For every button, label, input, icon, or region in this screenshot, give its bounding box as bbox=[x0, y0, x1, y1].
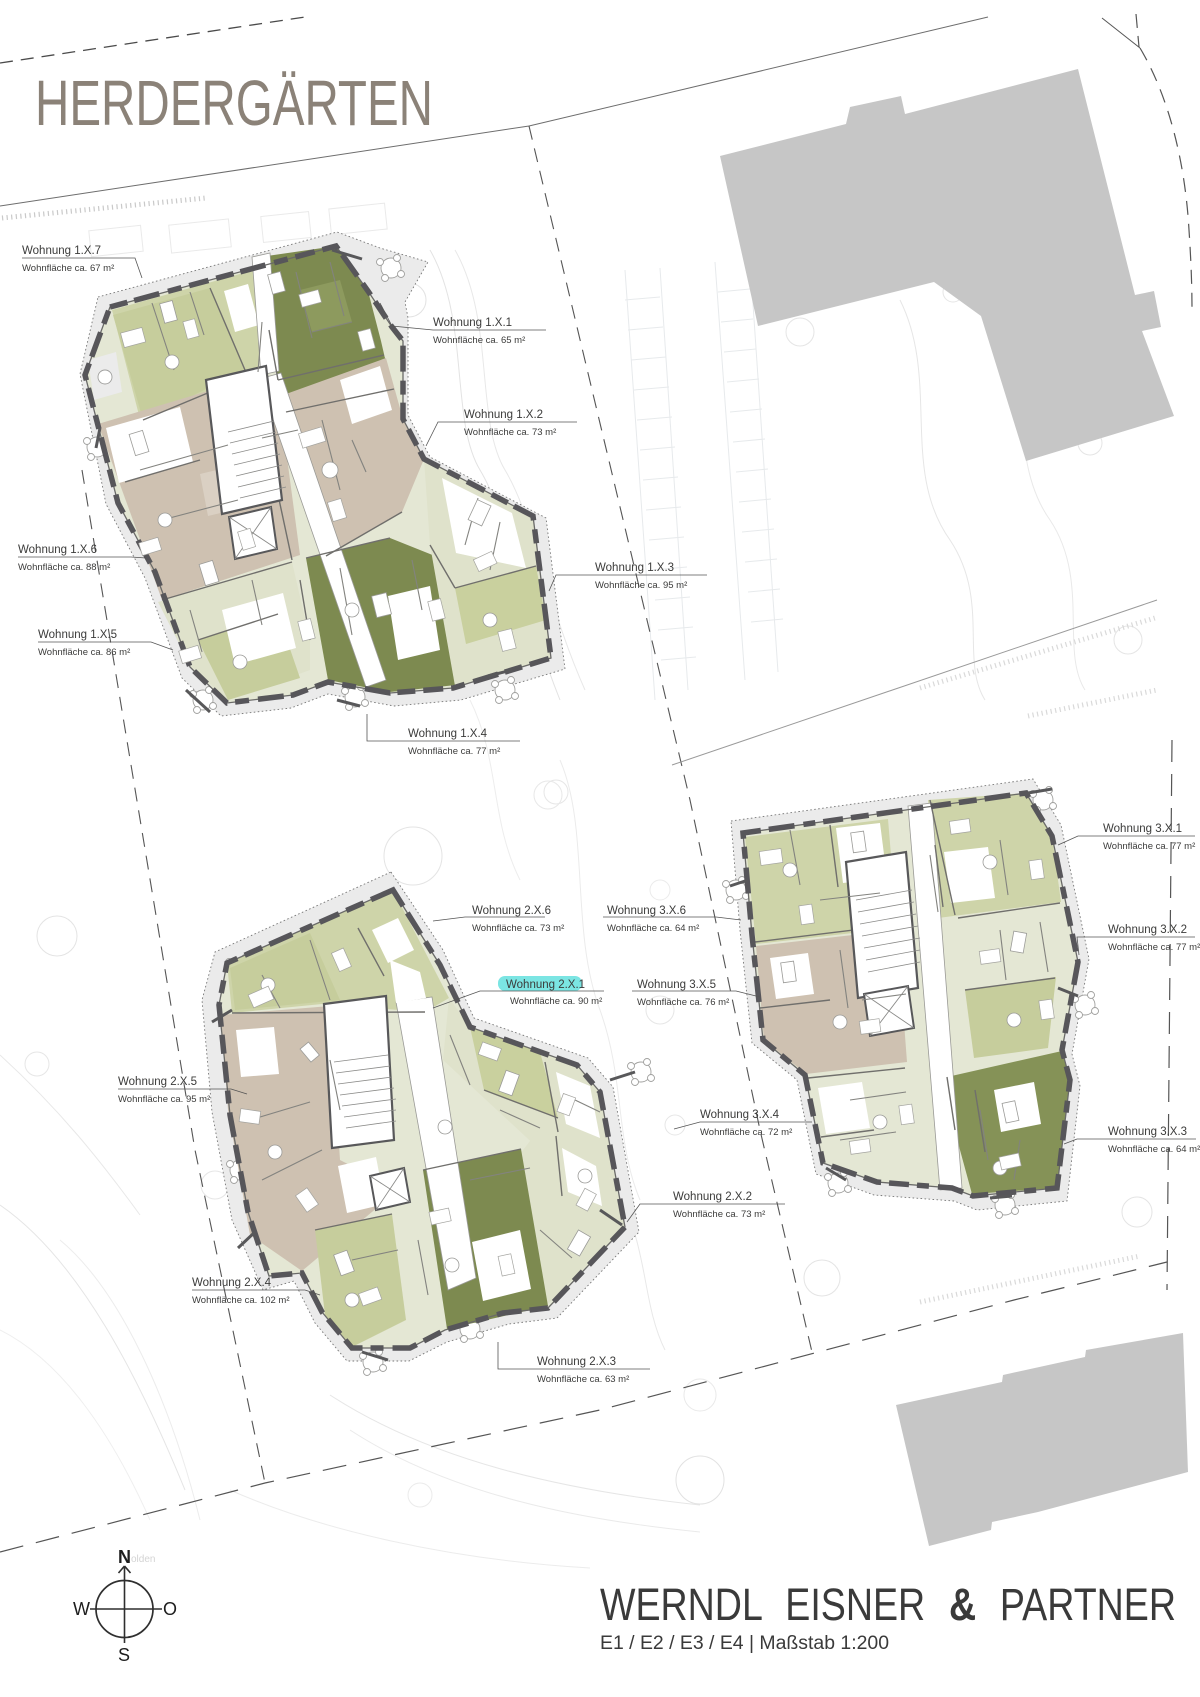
svg-text:W: W bbox=[73, 1599, 90, 1619]
svg-text:Wohnfläche ca. 95 m²: Wohnfläche ca. 95 m² bbox=[595, 580, 687, 591]
svg-text:Wohnfläche ca. 67 m²: Wohnfläche ca. 67 m² bbox=[22, 263, 114, 274]
svg-text:Wohnfläche ca. 77 m²: Wohnfläche ca. 77 m² bbox=[408, 746, 500, 757]
svg-text:Wohnung 2.X.1: Wohnung 2.X.1 bbox=[506, 979, 585, 991]
svg-text:Wohnung 2.X.5: Wohnung 2.X.5 bbox=[118, 1076, 197, 1088]
svg-text:Wohnfläche ca. 65 m²: Wohnfläche ca. 65 m² bbox=[433, 335, 525, 346]
svg-text:olden: olden bbox=[131, 1554, 155, 1565]
svg-text:Wohnfläche ca. 95 m²: Wohnfläche ca. 95 m² bbox=[118, 1094, 210, 1105]
svg-text:Wohnfläche ca. 64 m²: Wohnfläche ca. 64 m² bbox=[607, 923, 699, 934]
svg-text:Wohnung 2.X.4: Wohnung 2.X.4 bbox=[192, 1277, 272, 1289]
svg-text:Wohnung 1.X.7: Wohnung 1.X.7 bbox=[22, 245, 101, 257]
svg-text:Wohnung 1.X.1: Wohnung 1.X.1 bbox=[433, 317, 512, 329]
svg-text:Wohnfläche ca. 72 m²: Wohnfläche ca. 72 m² bbox=[700, 1127, 792, 1138]
svg-text:Wohnung 2.X.3: Wohnung 2.X.3 bbox=[537, 1356, 616, 1368]
svg-text:Wohnung 3.X.5: Wohnung 3.X.5 bbox=[637, 979, 716, 991]
svg-text:Wohnung 1.X.6: Wohnung 1.X.6 bbox=[18, 544, 97, 556]
svg-text:O: O bbox=[163, 1599, 177, 1619]
svg-text:Wohnfläche ca. 73 m²: Wohnfläche ca. 73 m² bbox=[464, 427, 556, 438]
svg-text:Wohnfläche ca. 86 m²: Wohnfläche ca. 86 m² bbox=[38, 647, 130, 658]
svg-text:WERNDL EISNER & PARTNER: WERNDL EISNER & PARTNER bbox=[600, 1579, 1176, 1630]
svg-text:Wohnung 1.X.2: Wohnung 1.X.2 bbox=[464, 409, 543, 421]
svg-text:Wohnung 3.X.6: Wohnung 3.X.6 bbox=[607, 905, 686, 917]
svg-text:Wohnfläche ca. 63 m²: Wohnfläche ca. 63 m² bbox=[537, 1374, 629, 1385]
svg-text:Wohnung 1.X.4: Wohnung 1.X.4 bbox=[408, 728, 488, 740]
svg-text:Wohnfläche ca. 73 m²: Wohnfläche ca. 73 m² bbox=[673, 1209, 765, 1220]
svg-text:Wohnung 3.X.3: Wohnung 3.X.3 bbox=[1108, 1126, 1187, 1138]
svg-text:Wohnfläche ca. 88 m²: Wohnfläche ca. 88 m² bbox=[18, 562, 110, 573]
svg-text:Wohnfläche ca. 77 m²: Wohnfläche ca. 77 m² bbox=[1108, 942, 1200, 953]
svg-text:N: N bbox=[118, 1547, 131, 1567]
svg-text:Wohnung 1.X.5: Wohnung 1.X.5 bbox=[38, 629, 117, 641]
svg-text:Wohnung 2.X.6: Wohnung 2.X.6 bbox=[472, 905, 551, 917]
svg-text:Wohnung 3.X.4: Wohnung 3.X.4 bbox=[700, 1109, 780, 1121]
svg-text:Wohnung 1.X.3: Wohnung 1.X.3 bbox=[595, 562, 674, 574]
svg-text:Wohnfläche ca. 90 m²: Wohnfläche ca. 90 m² bbox=[510, 996, 602, 1007]
svg-text:Wohnung 3.X.1: Wohnung 3.X.1 bbox=[1103, 823, 1182, 835]
svg-text:HERDERGÄRTEN: HERDERGÄRTEN bbox=[35, 67, 433, 139]
svg-text:Wohnfläche ca. 64 m²: Wohnfläche ca. 64 m² bbox=[1108, 1144, 1200, 1155]
svg-text:Wohnfläche ca. 76 m²: Wohnfläche ca. 76 m² bbox=[637, 997, 729, 1008]
svg-text:Wohnung 3.X.2: Wohnung 3.X.2 bbox=[1108, 924, 1187, 936]
svg-text:Wohnfläche ca. 77 m²: Wohnfläche ca. 77 m² bbox=[1103, 841, 1195, 852]
svg-text:E1 / E2 / E3 / E4 | Maßstab: E1 / E2 / E3 / E4 | Maßstab 1:200 bbox=[600, 1633, 889, 1654]
svg-text:Wohnung 2.X.2: Wohnung 2.X.2 bbox=[673, 1191, 752, 1203]
svg-text:S: S bbox=[118, 1645, 130, 1665]
svg-text:Wohnfläche ca. 73 m²: Wohnfläche ca. 73 m² bbox=[472, 923, 564, 934]
svg-text:Wohnfläche ca. 102 m²: Wohnfläche ca. 102 m² bbox=[192, 1295, 290, 1306]
